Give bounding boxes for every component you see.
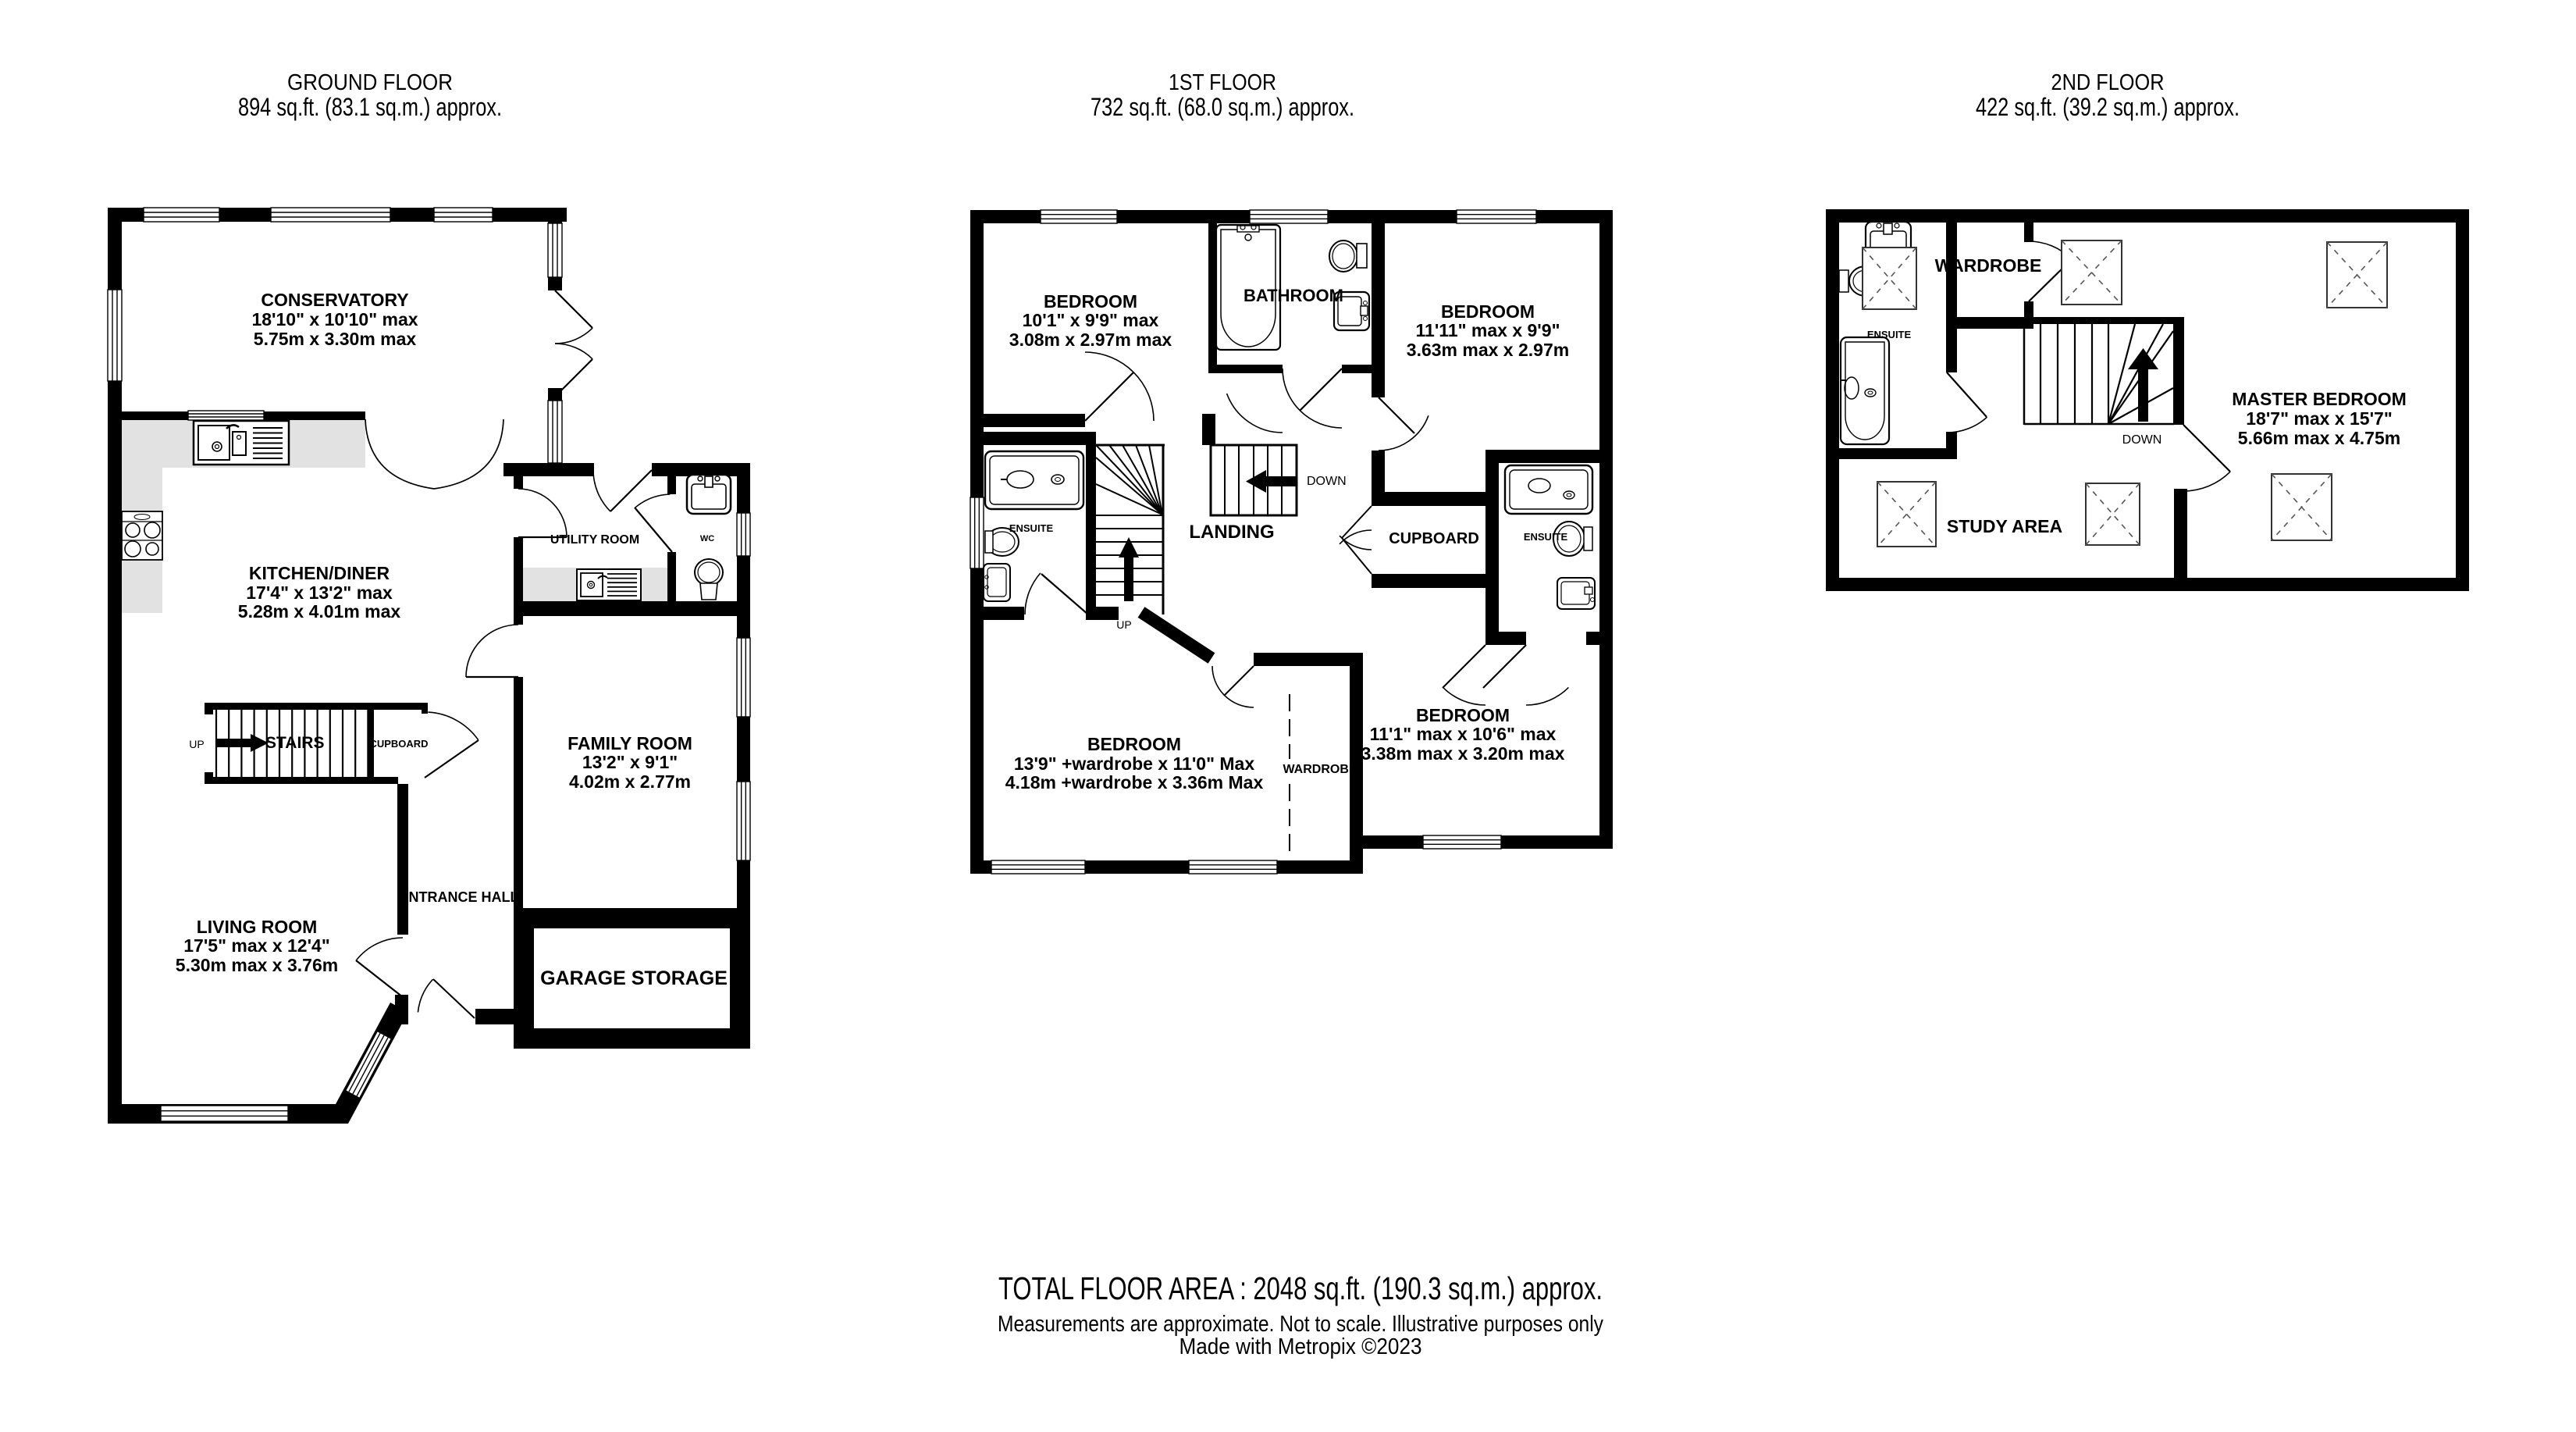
svg-text:17'5" max x 12'4": 17'5" max x 12'4"	[183, 935, 330, 956]
svg-text:3.63m max x 2.97m: 3.63m max x 2.97m	[1407, 340, 1569, 360]
svg-text:WARDROBE: WARDROBE	[1935, 255, 2042, 276]
svg-text:CONSERVATORY: CONSERVATORY	[261, 290, 408, 310]
svg-text:BEDROOM: BEDROOM	[1087, 734, 1181, 754]
svg-text:11'1" max x 10'6" max: 11'1" max x 10'6" max	[1370, 724, 1557, 744]
svg-text:1ST FLOOR: 1ST FLOOR	[1169, 70, 1276, 95]
svg-text:GARAGE STORAGE: GARAGE STORAGE	[540, 967, 728, 989]
svg-text:5.75m x 3.30m max: 5.75m x 3.30m max	[254, 329, 417, 349]
svg-text:TOTAL FLOOR AREA : 2048 sq.ft.: TOTAL FLOOR AREA : 2048 sq.ft. (190.3 sq…	[998, 1270, 1603, 1306]
svg-text:LIVING ROOM: LIVING ROOM	[197, 917, 318, 937]
svg-text:Made with Metropix ©2023: Made with Metropix ©2023	[1179, 1334, 1422, 1359]
svg-text:KITCHEN/DINER: KITCHEN/DINER	[249, 563, 390, 583]
svg-text:13'9" +wardrobe x 11'0" Max: 13'9" +wardrobe x 11'0" Max	[1014, 753, 1254, 774]
svg-text:STAIRS: STAIRS	[265, 734, 324, 752]
svg-text:2ND FLOOR: 2ND FLOOR	[2051, 70, 2165, 95]
svg-text:WC: WC	[700, 534, 714, 543]
svg-text:18'7" max x 15'7": 18'7" max x 15'7"	[2246, 408, 2393, 429]
svg-text:894 sq.ft. (83.1 sq.m.) approx: 894 sq.ft. (83.1 sq.m.) approx.	[238, 93, 502, 121]
svg-text:5.28m x 4.01m max: 5.28m x 4.01m max	[238, 601, 401, 622]
svg-text:5.30m max x 3.76m: 5.30m max x 3.76m	[176, 955, 338, 975]
svg-text:MASTER BEDROOM: MASTER BEDROOM	[2232, 389, 2407, 409]
svg-text:ENSUITE: ENSUITE	[1867, 329, 1912, 340]
svg-text:UTILITY ROOM: UTILITY ROOM	[550, 533, 639, 547]
svg-text:BEDROOM: BEDROOM	[1441, 301, 1535, 322]
svg-text:BEDROOM: BEDROOM	[1416, 705, 1510, 725]
svg-text:UP: UP	[1116, 618, 1131, 631]
svg-text:FAMILY ROOM: FAMILY ROOM	[568, 733, 692, 753]
svg-text:DOWN: DOWN	[1307, 475, 1347, 488]
svg-text:3.38m max x 3.20m max: 3.38m max x 3.20m max	[1361, 743, 1565, 764]
svg-text:GROUND FLOOR: GROUND FLOOR	[287, 70, 453, 95]
svg-text:3.08m x 2.97m max: 3.08m x 2.97m max	[1009, 330, 1172, 350]
svg-text:17'4" x 13'2" max: 17'4" x 13'2" max	[246, 582, 393, 603]
svg-text:CUPBOARD: CUPBOARD	[369, 738, 428, 750]
svg-text:STUDY AREA: STUDY AREA	[1947, 516, 2062, 536]
svg-text:422 sq.ft. (39.2 sq.m.) approx: 422 sq.ft. (39.2 sq.m.) approx.	[1976, 93, 2240, 121]
svg-text:ENSUITE: ENSUITE	[1009, 522, 1054, 534]
svg-text:732 sq.ft. (68.0 sq.m.) approx: 732 sq.ft. (68.0 sq.m.) approx.	[1091, 93, 1354, 121]
svg-text:WARDROBE: WARDROBE	[1283, 763, 1357, 776]
svg-text:4.02m x 2.77m: 4.02m x 2.77m	[569, 771, 691, 792]
svg-text:BATHROOM: BATHROOM	[1244, 286, 1343, 305]
svg-text:LANDING: LANDING	[1189, 522, 1274, 543]
svg-text:18'10" x 10'10" max: 18'10" x 10'10" max	[251, 309, 418, 330]
svg-text:DOWN: DOWN	[2122, 433, 2162, 447]
svg-text:CUPBOARD: CUPBOARD	[1389, 530, 1479, 547]
svg-text:Measurements are approximate.: Measurements are approximate. Not to sca…	[998, 1312, 1603, 1337]
svg-text:BEDROOM: BEDROOM	[1044, 291, 1137, 312]
svg-text:10'1" x 9'9" max: 10'1" x 9'9" max	[1023, 310, 1159, 330]
svg-text:UP: UP	[189, 738, 204, 750]
svg-text:13'2" x 9'1": 13'2" x 9'1"	[582, 752, 678, 772]
svg-text:ENSUITE: ENSUITE	[1524, 531, 1568, 543]
svg-text:11'11" max x 9'9": 11'11" max x 9'9"	[1416, 320, 1560, 340]
svg-text:ENTRANCE HALL: ENTRANCE HALL	[400, 889, 519, 905]
svg-text:5.66m max x 4.75m: 5.66m max x 4.75m	[2238, 428, 2400, 448]
svg-text:4.18m +wardrobe x 3.36m Max: 4.18m +wardrobe x 3.36m Max	[1005, 772, 1264, 793]
